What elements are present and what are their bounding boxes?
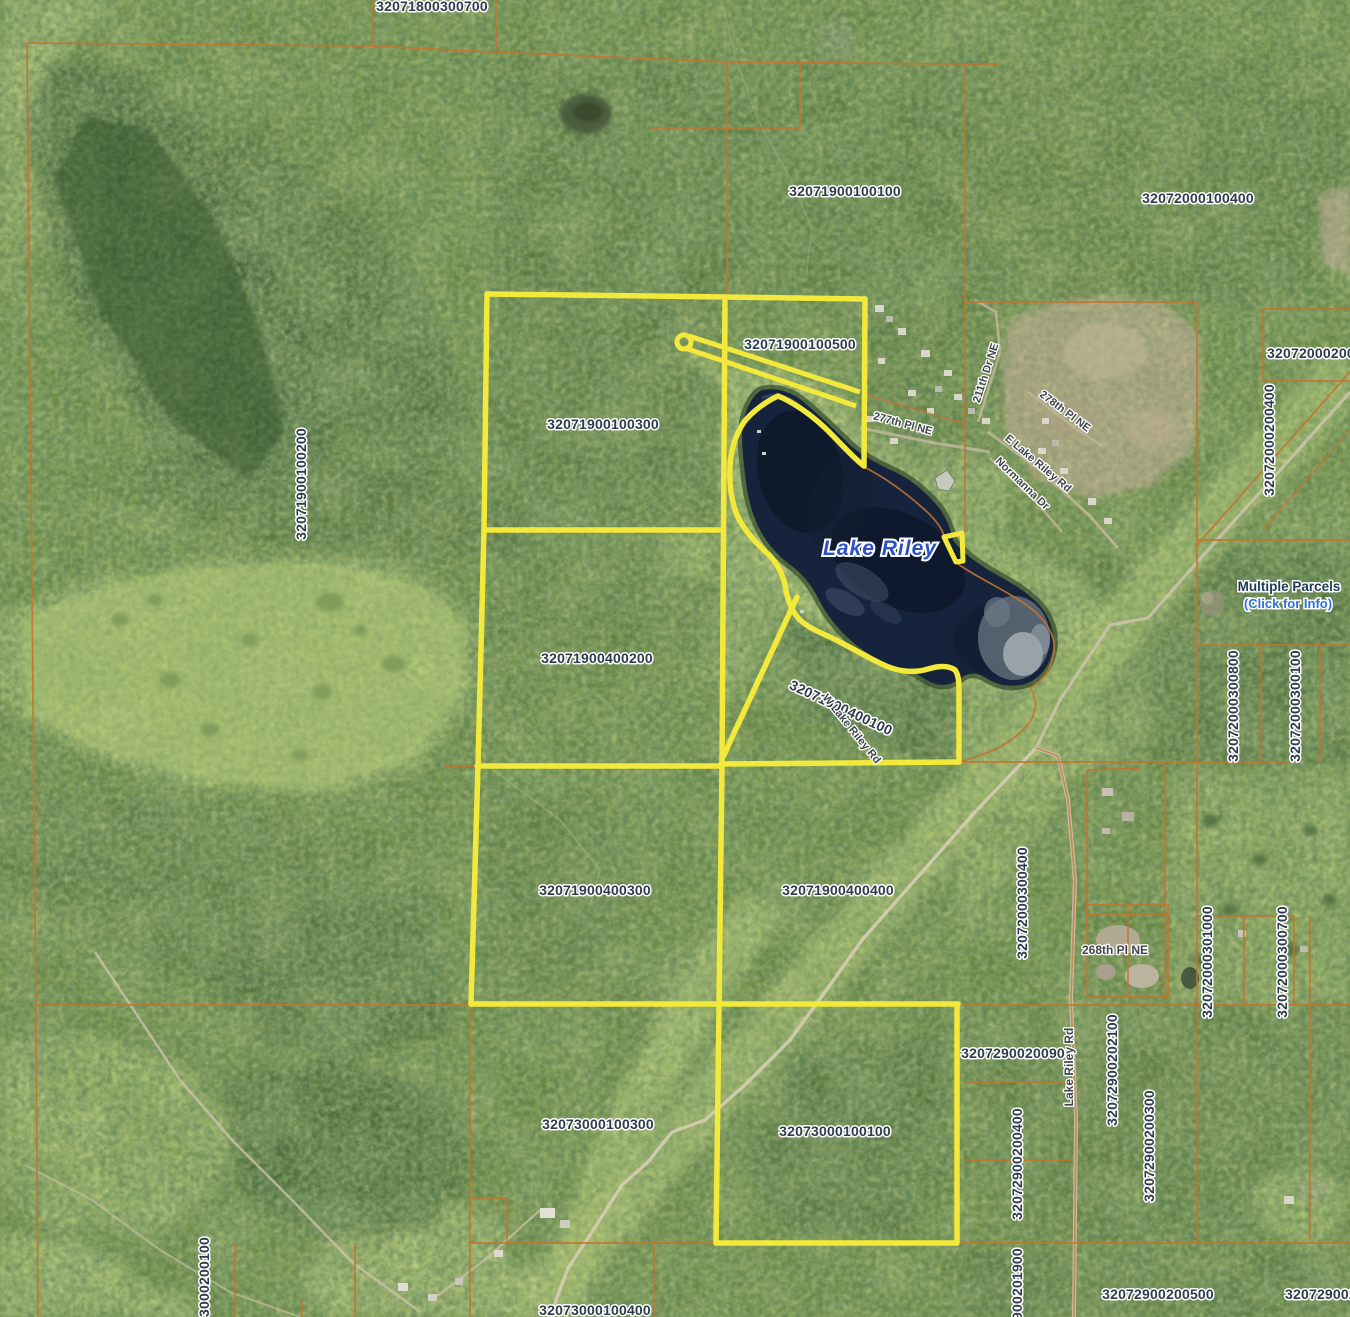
svg-text:32073000100100: 32073000100100 [779, 1123, 891, 1139]
svg-text:32071900400200: 32071900400200 [541, 650, 653, 666]
svg-text:32072000200500: 32072000200500 [1267, 345, 1350, 361]
svg-text:32072000100400: 32072000100400 [1142, 190, 1254, 206]
svg-text:3000200100: 3000200100 [196, 1237, 212, 1317]
svg-text:32072000300400: 32072000300400 [1014, 847, 1030, 959]
svg-text:32071900100100: 32071900100100 [789, 183, 901, 199]
svg-text:32071900400300: 32071900400300 [539, 882, 651, 898]
svg-text:32072000200400: 32072000200400 [1261, 384, 1277, 496]
svg-text:32071900400400: 32071900400400 [782, 882, 894, 898]
svg-text:32072000301000: 32072000301000 [1199, 906, 1215, 1018]
svg-text:32072000300800: 32072000300800 [1225, 650, 1241, 762]
svg-text:32072900201900: 32072900201900 [1009, 1248, 1025, 1317]
svg-text:32072900200300: 32072900200300 [1141, 1090, 1157, 1202]
svg-text:32072000300100: 32072000300100 [1287, 650, 1303, 762]
svg-text:32073000100300: 32073000100300 [542, 1116, 654, 1132]
svg-text:268th Pl NE: 268th Pl NE [1082, 943, 1148, 957]
svg-text:32072900200500: 32072900200500 [1102, 1286, 1214, 1302]
svg-text:32072900202100: 32072900202100 [1104, 1014, 1120, 1126]
svg-text:32073000100400: 32073000100400 [539, 1302, 651, 1317]
svg-text:32071800300700: 32071800300700 [376, 0, 488, 14]
svg-text:(Click for Info): (Click for Info) [1244, 596, 1332, 611]
svg-text:32071900100500: 32071900100500 [744, 336, 856, 352]
svg-text:32071900100300: 32071900100300 [547, 416, 659, 432]
svg-text:32072900200900: 32072900200900 [961, 1045, 1073, 1061]
svg-text:32072000300700: 32072000300700 [1274, 906, 1290, 1018]
svg-text:Multiple Parcels: Multiple Parcels [1238, 579, 1341, 594]
svg-text:Lake Riley Rd: Lake Riley Rd [1062, 1028, 1076, 1107]
svg-text:Lake Riley: Lake Riley [823, 537, 937, 560]
svg-text:32072900200500: 32072900200500 [1285, 1286, 1350, 1302]
svg-text:32071900100200: 32071900100200 [293, 428, 309, 540]
svg-text:32072900200400: 32072900200400 [1009, 1108, 1025, 1220]
